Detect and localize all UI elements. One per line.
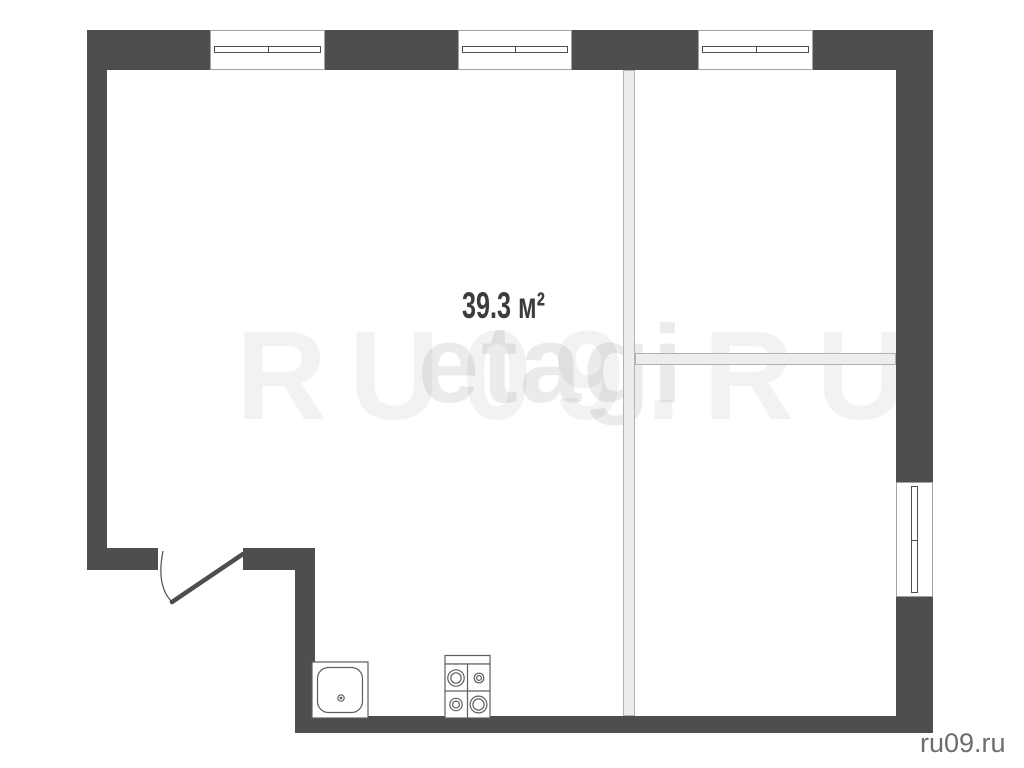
window-glazing [214,46,321,53]
area-label: 39.3 м² [462,287,545,324]
site-watermark: ru09.ru [920,730,1006,757]
window-mullion [515,47,516,52]
stove-4-burner-icon [445,656,490,719]
window-glazing [462,46,568,53]
wall-top-segment-3 [572,30,698,70]
wall-right-upper [896,30,933,482]
wall-kitchen-left [295,548,315,733]
window-icon [458,30,572,70]
window-mullion [268,47,269,52]
wall-top-segment-2 [325,30,458,70]
kitchen-sink-icon [312,662,368,718]
wall-right-lower [896,597,933,733]
window-mullion [756,47,757,52]
window-icon [698,30,813,70]
window-icon [896,482,933,597]
window-glazing [911,486,918,593]
wall-door-left-segment [87,548,158,570]
window-mullion [912,540,917,541]
interior-wall-vertical [623,70,635,716]
watermark-etagi-logo: etagi [418,310,685,420]
window-glazing [702,46,809,53]
window-icon [210,30,325,70]
door-swing-icon [161,551,243,602]
interior-wall-horizontal [635,353,896,365]
wall-left [87,30,107,570]
wall-bottom [295,716,933,733]
floorplan-canvas: RU09.RU etagi [0,0,1024,768]
